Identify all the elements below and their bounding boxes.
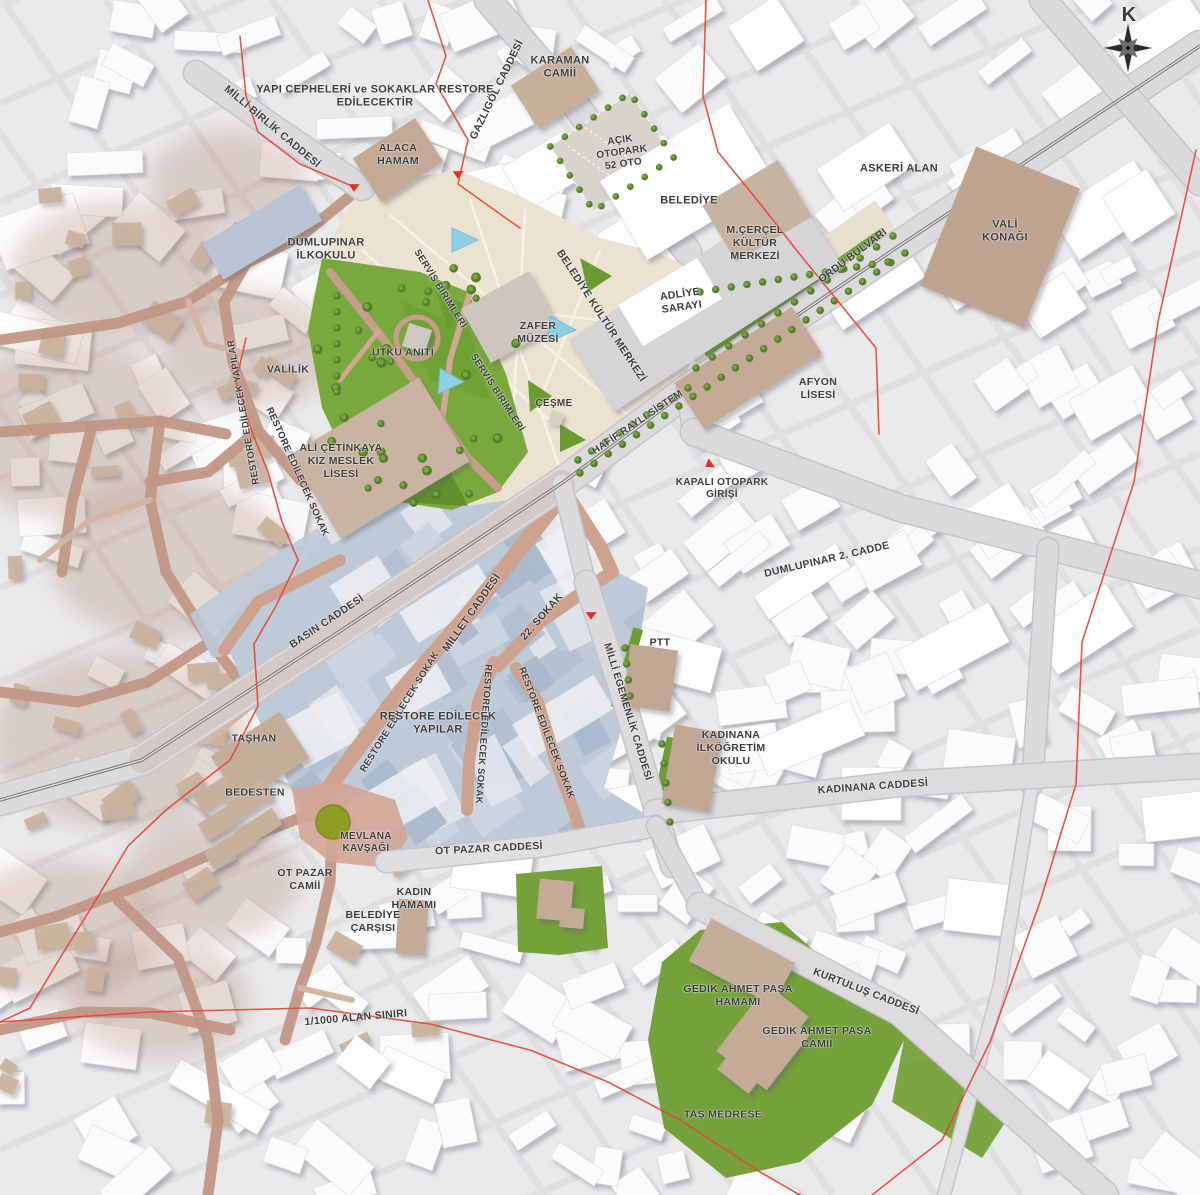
mevlana-roundabout <box>316 805 350 839</box>
map-canvas <box>0 0 1200 1195</box>
urban-plan-map: KYAPI CEPHELERİ ve SOKAKLAR RESTORE EDİL… <box>0 0 1200 1195</box>
kadin-hamami-building <box>396 899 429 955</box>
